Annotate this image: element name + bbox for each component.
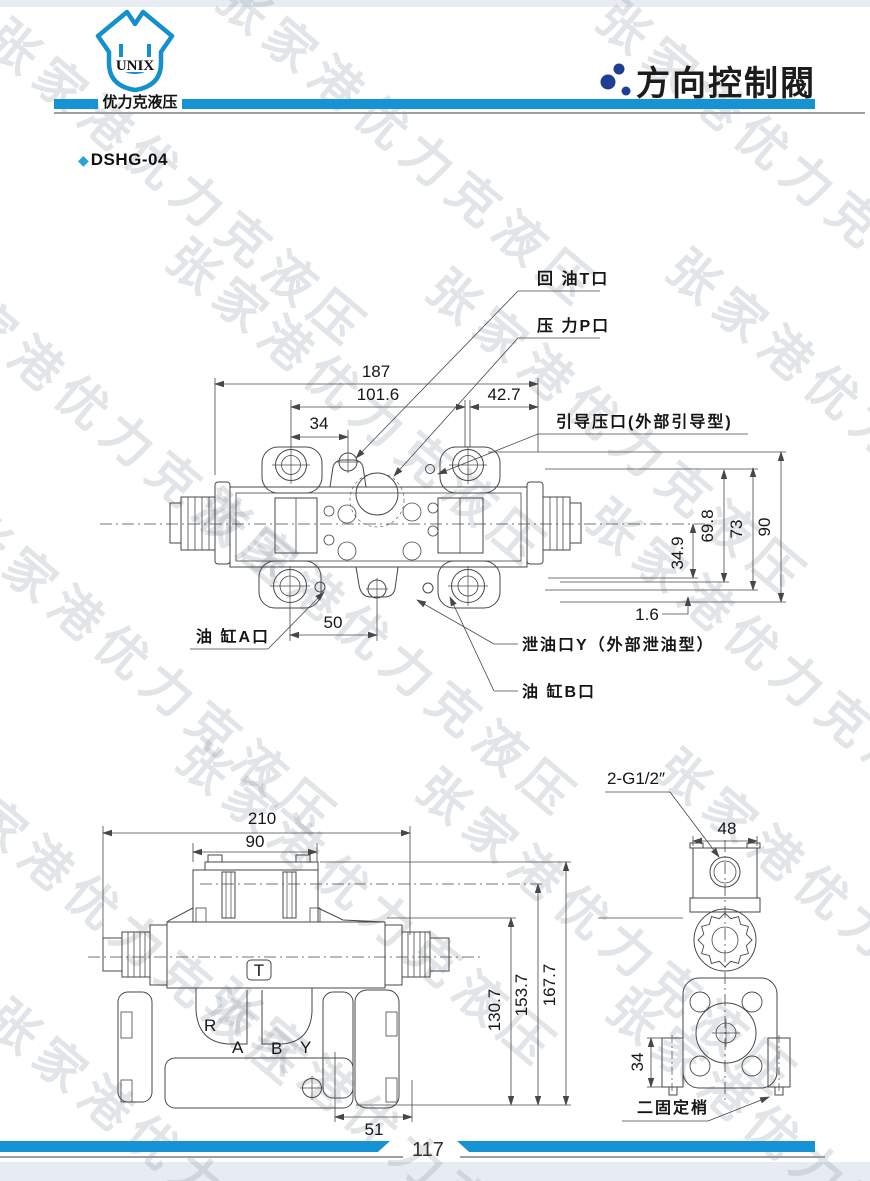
- diamond-bullet-icon: ◆: [78, 152, 89, 169]
- dim-overall-height: 90: [755, 518, 774, 537]
- company-name: 优力克液压: [96, 91, 184, 112]
- top-view-texts: 187 101.6 42.7 34 50 1.6 34.9 69.8 73 90…: [196, 269, 774, 701]
- label-pilot-port: 引导压口(外部引导型): [556, 412, 733, 431]
- dim-bolt-vspan: 69.8: [698, 509, 717, 542]
- label-return-t-port: 回 油T口: [537, 269, 609, 288]
- footer-bar-right: [457, 1141, 815, 1152]
- dim-body-height: 73: [727, 520, 746, 539]
- catalog-page: 张家港优力克液压 张家港优力克液压 张家港优力克液压 张家港优力克液压 张家港优…: [0, 0, 870, 1181]
- model-code: DSHG-04: [91, 150, 168, 170]
- label-cylinder-b-port: 油 缸B口: [522, 682, 596, 701]
- port-letter-t: T: [254, 961, 264, 980]
- front-view-texts: 210 90 130.7 153.7 167.7 51 T R A B Y: [204, 809, 559, 1139]
- page-number: 117: [398, 1139, 458, 1162]
- title-dots-icon: [598, 60, 638, 104]
- dim-bolt-span: 101.6: [357, 385, 400, 404]
- dim-overall-height: 167.7: [540, 964, 559, 1007]
- page-title: 方向控制閥: [636, 56, 860, 105]
- dim-right-span: 42.7: [487, 385, 520, 404]
- side-view-drawing: [662, 840, 790, 1102]
- dim-body-height: 130.7: [485, 989, 504, 1032]
- front-view-dimensions: [103, 826, 683, 1122]
- label-cylinder-a-port: 油 缸A口: [196, 627, 270, 646]
- dim-half-height: 34.9: [668, 536, 687, 569]
- dim-gap: 1.6: [635, 605, 659, 624]
- top-view-drawing: [100, 447, 705, 608]
- dim-t-offset: 34: [310, 414, 329, 433]
- dim-a-offset: 50: [324, 613, 343, 632]
- label-fixing-pins: 二固定梢: [637, 1098, 709, 1117]
- logo-text: UNIX: [116, 58, 155, 74]
- dim-front-overall-width: 210: [248, 809, 276, 828]
- label-pressure-p-port: 压 力P口: [537, 316, 610, 335]
- dim-base-offset: 51: [365, 1120, 384, 1139]
- unix-logo-icon: UNIX: [88, 6, 188, 98]
- front-view-drawing: [88, 855, 480, 1108]
- dim-pilot-cl-height: 153.7: [512, 974, 531, 1017]
- side-view-texts: 2-G1/2″ 48 34 二固定梢: [607, 769, 736, 1117]
- model-heading: ◆ DSHG-04: [78, 150, 168, 170]
- dim-overall-width: 187: [362, 362, 390, 381]
- label-drain-y-port: 泄油口Y（外部泄油型）: [522, 635, 715, 654]
- port-letter-r: R: [204, 1016, 216, 1035]
- port-letter-y: Y: [300, 1038, 311, 1057]
- dim-pilot-width: 90: [246, 832, 265, 851]
- technical-drawings: 187 101.6 42.7 34 50 1.6 34.9 69.8 73 90…: [0, 0, 870, 1181]
- top-view-dimensions: [190, 291, 786, 691]
- footer-underline-right: [460, 1156, 825, 1158]
- label-thread-spec: 2-G1/2″: [607, 769, 665, 788]
- dim-bracket-height: 34: [628, 1053, 647, 1072]
- port-letter-b: B: [271, 1039, 282, 1058]
- dim-side-width: 48: [718, 819, 737, 838]
- footer-underline-left: [0, 1156, 403, 1158]
- footer-bar-left: [0, 1141, 390, 1152]
- port-letter-a: A: [232, 1038, 244, 1057]
